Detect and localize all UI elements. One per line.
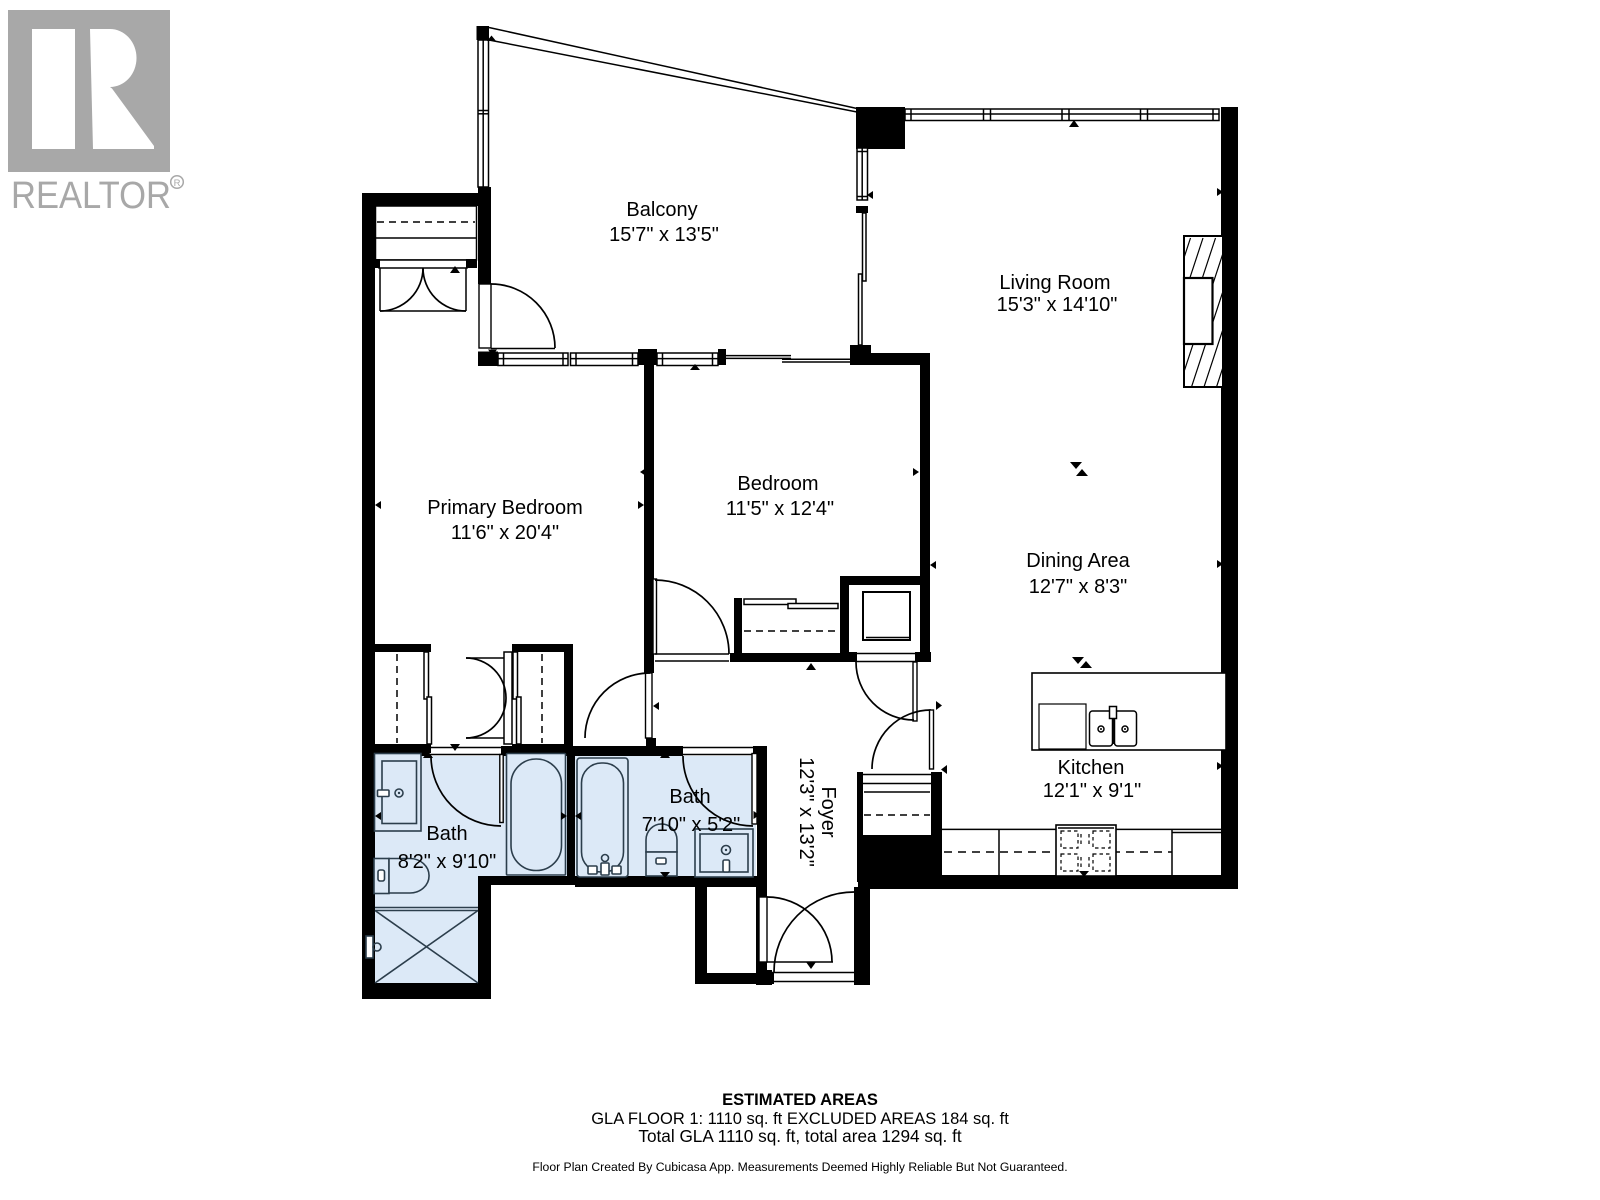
svg-text:ESTIMATED AREAS: ESTIMATED AREAS: [722, 1091, 878, 1109]
svg-text:Floor Plan Created By Cubicasa: Floor Plan Created By Cubicasa App. Meas…: [532, 1160, 1067, 1174]
svg-text:Balcony: Balcony: [626, 199, 697, 221]
svg-text:11'5" x 12'4": 11'5" x 12'4": [726, 498, 834, 520]
svg-text:Living Room: Living Room: [999, 272, 1110, 294]
svg-text:8'2" x 9'10": 8'2" x 9'10": [398, 851, 497, 873]
svg-text:Bedroom: Bedroom: [737, 473, 818, 495]
svg-text:12'7" x 8'3": 12'7" x 8'3": [1029, 576, 1128, 598]
svg-text:Primary Bedroom: Primary Bedroom: [427, 497, 583, 519]
svg-text:Bath: Bath: [669, 786, 710, 808]
svg-text:7'10" x 5'2": 7'10" x 5'2": [642, 814, 741, 836]
svg-text:Total GLA 1110 sq. ft, total a: Total GLA 1110 sq. ft, total area 1294 s…: [638, 1126, 961, 1146]
svg-text:15'7" x 13'5": 15'7" x 13'5": [609, 224, 719, 246]
svg-text:R: R: [174, 178, 181, 189]
svg-text:11'6" x 20'4": 11'6" x 20'4": [451, 522, 559, 544]
svg-text:Kitchen: Kitchen: [1058, 757, 1125, 779]
svg-text:REALTOR: REALTOR: [11, 175, 171, 217]
svg-text:Dining Area: Dining Area: [1026, 550, 1130, 572]
svg-text:12'1" x 9'1": 12'1" x 9'1": [1043, 780, 1142, 802]
svg-text:Bath: Bath: [426, 823, 467, 845]
svg-text:15'3" x 14'10": 15'3" x 14'10": [997, 294, 1118, 316]
